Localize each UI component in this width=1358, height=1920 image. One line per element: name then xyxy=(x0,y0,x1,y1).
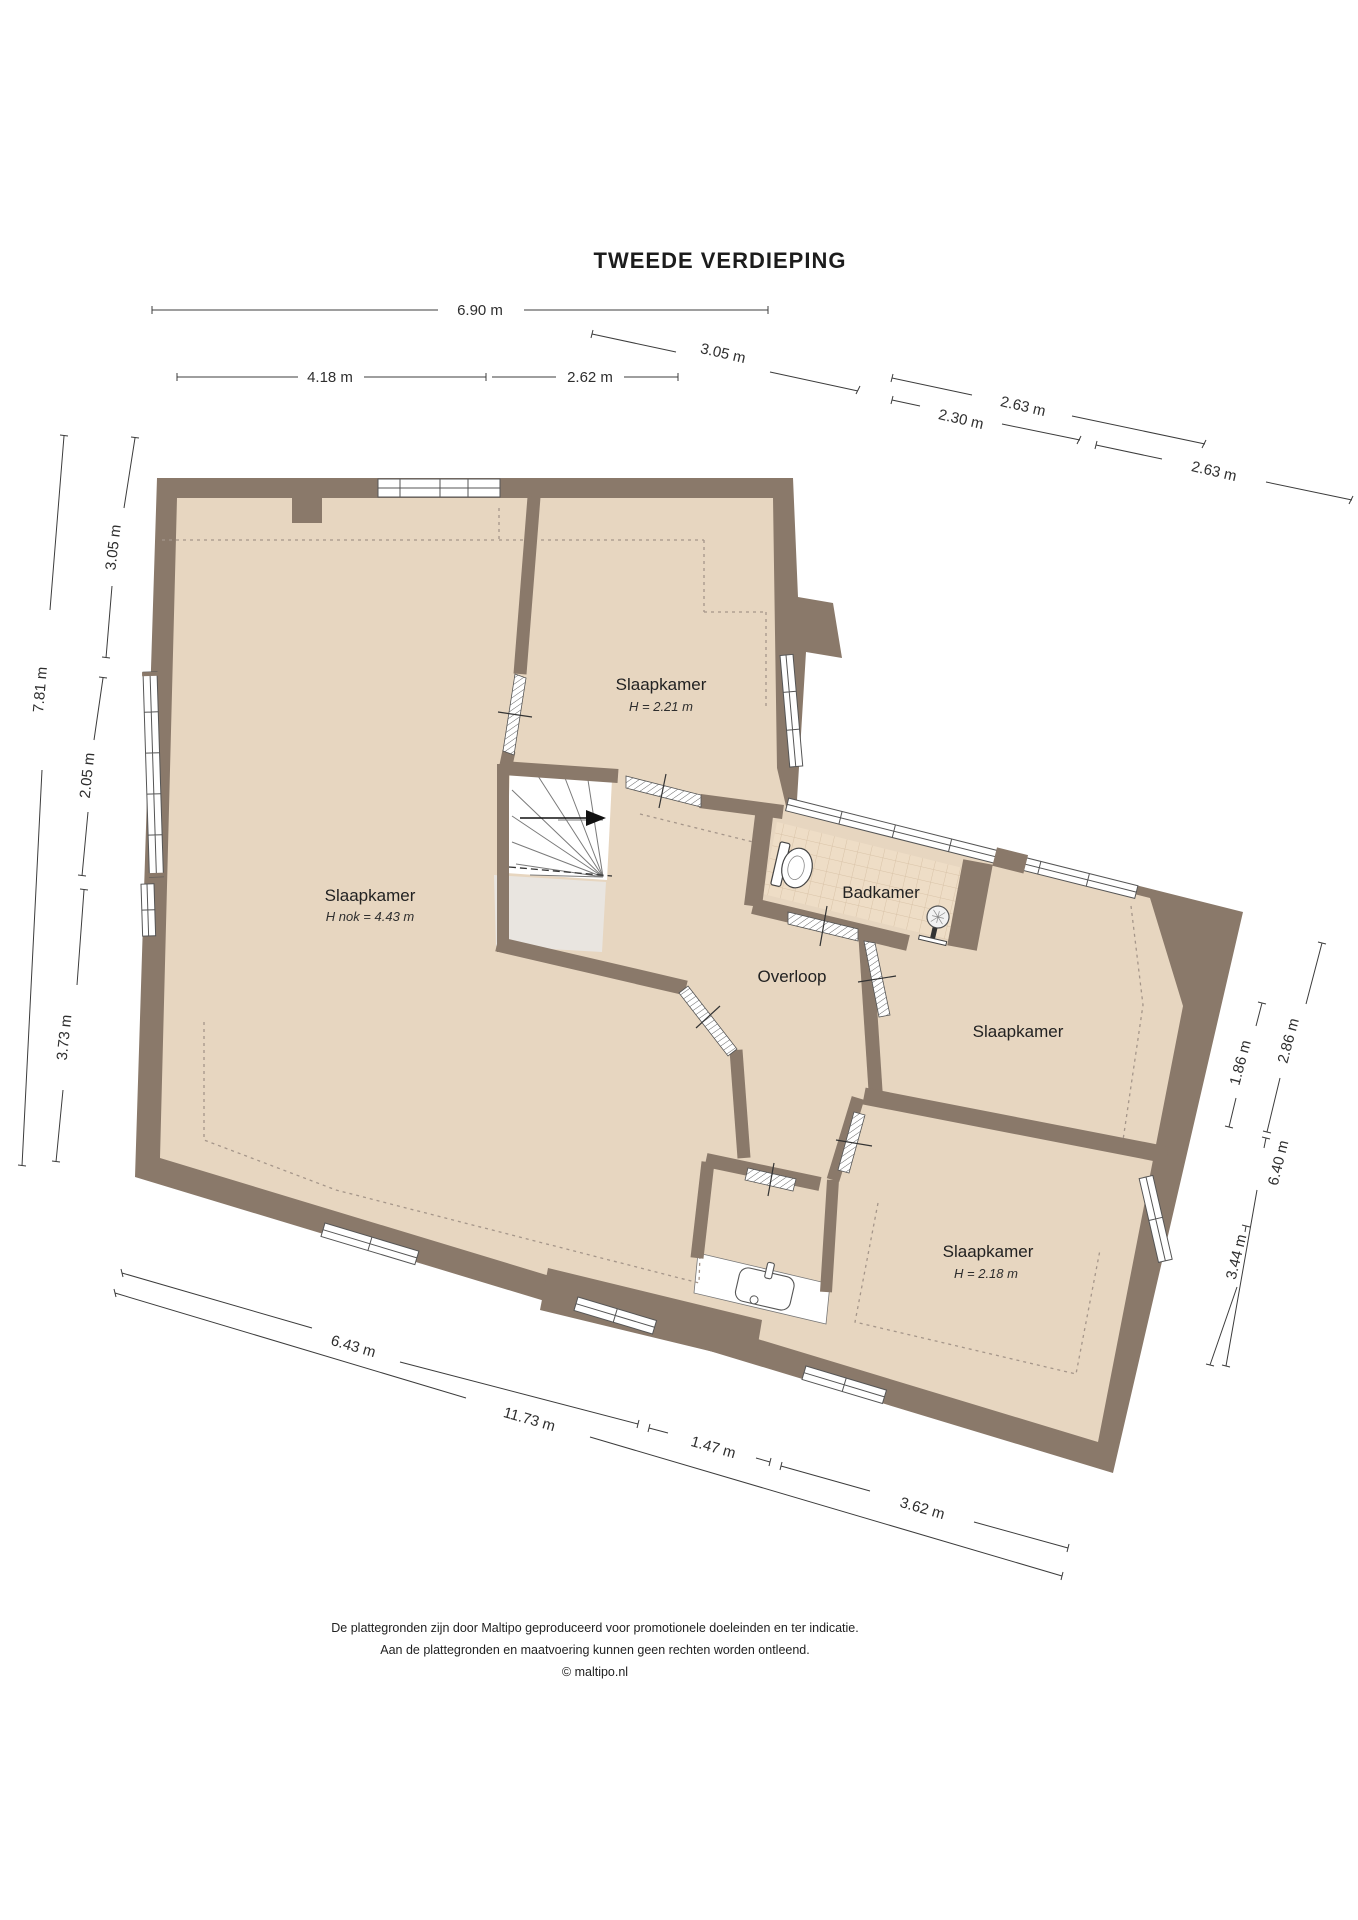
room-label-slaapkamer-top: Slaapkamer xyxy=(616,675,707,694)
dim-2-30: 2.30 m xyxy=(937,406,986,433)
dim-6-43: 6.43 m xyxy=(329,1332,378,1361)
dim-1-47: 1.47 m xyxy=(689,1433,738,1462)
dim-3-05-left: 3.05 m xyxy=(102,524,124,572)
room-label-badkamer: Badkamer xyxy=(842,883,920,902)
room-sub-slaapkamer-top: H = 2.21 m xyxy=(629,699,693,714)
room-label-slaapkamer-bottom: Slaapkamer xyxy=(943,1242,1034,1261)
dim-3-44: 3.44 m xyxy=(1223,1233,1251,1282)
room-label-overloop: Overloop xyxy=(758,967,827,986)
dim-2-86: 2.86 m xyxy=(1275,1016,1303,1065)
footer-copyright: © maltipo.nl xyxy=(562,1665,628,1679)
room-label-slaapkamer-right: Slaapkamer xyxy=(973,1022,1064,1041)
floorplan-page: TWEEDE VERDIEPING xyxy=(0,0,1358,1920)
room-sub-slaapkamer-bottom: H = 2.18 m xyxy=(954,1266,1018,1281)
footer-disclaimer-line1: De plattegronden zijn door Maltipo gepro… xyxy=(331,1621,858,1635)
room-sub-slaapkamer-left: H nok = 4.43 m xyxy=(326,909,415,924)
dim-2-05: 2.05 m xyxy=(77,752,99,799)
dim-6-40: 6.40 m xyxy=(1265,1139,1293,1188)
dim-1-86: 1.86 m xyxy=(1227,1038,1255,1087)
window-left-2 xyxy=(141,884,156,936)
dim-7-81: 7.81 m xyxy=(30,666,51,713)
chimney-block xyxy=(292,497,322,523)
footer-disclaimer-line2: Aan de plattegronden en maatvoering kunn… xyxy=(380,1643,810,1657)
stairs-area xyxy=(506,771,612,880)
dim-4-18: 4.18 m xyxy=(307,369,353,386)
window-top xyxy=(378,479,500,497)
dim-2-63-upper: 2.63 m xyxy=(999,393,1048,420)
dim-3-73: 3.73 m xyxy=(54,1014,76,1061)
dim-3-62: 3.62 m xyxy=(898,1494,947,1523)
dim-6-90: 6.90 m xyxy=(457,302,503,319)
page-title: TWEEDE VERDIEPING xyxy=(594,248,847,273)
dim-2-63-lower: 2.63 m xyxy=(1190,458,1239,485)
dim-11-73: 11.73 m xyxy=(501,1404,557,1435)
room-label-slaapkamer-left: Slaapkamer xyxy=(325,886,416,905)
dim-3-05-top: 3.05 m xyxy=(699,340,748,367)
floorplan-svg: TWEEDE VERDIEPING xyxy=(0,0,1358,1920)
dim-2-62: 2.62 m xyxy=(567,369,613,386)
